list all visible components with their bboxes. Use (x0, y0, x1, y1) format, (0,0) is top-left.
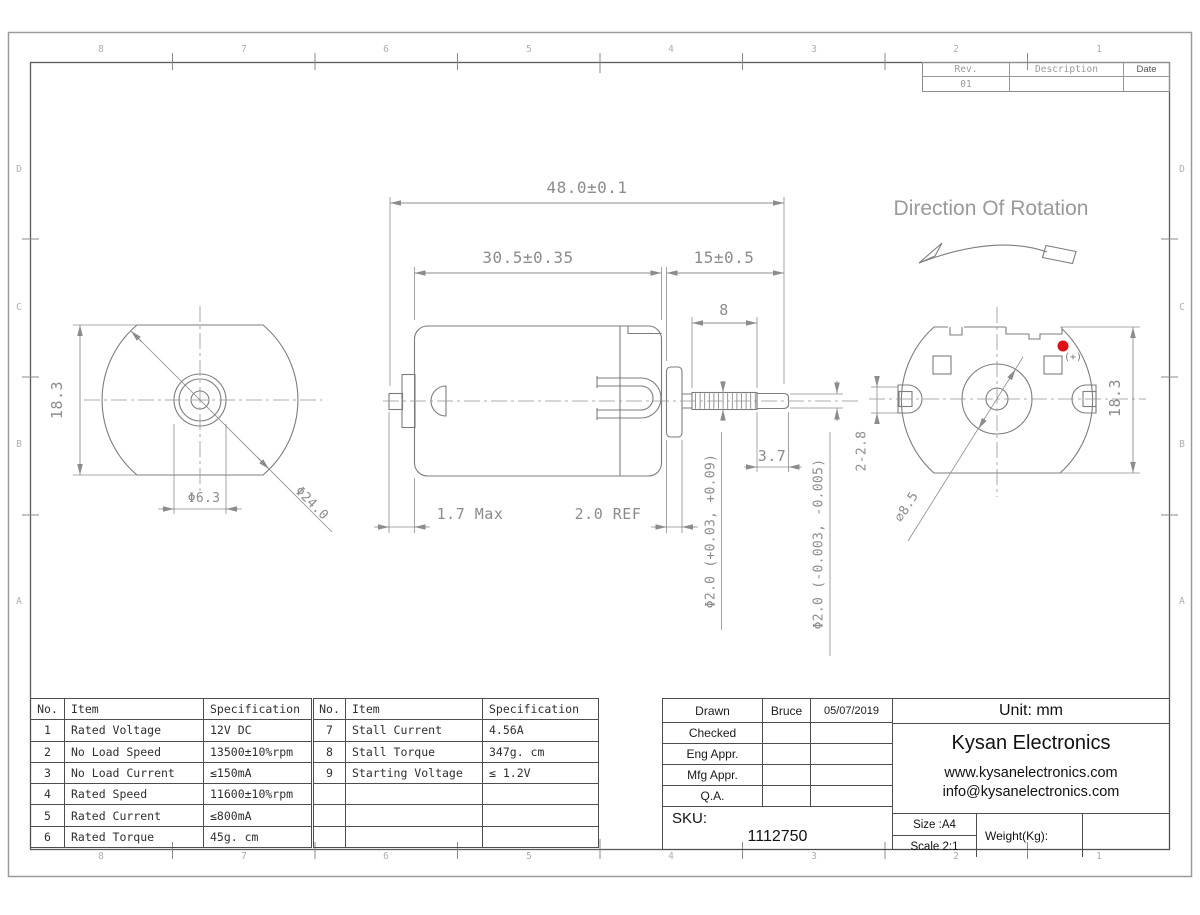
dim-body-dia: Φ24.0 (292, 484, 331, 523)
spec-cell: Rated Current (65, 805, 204, 826)
title-block: Drawn Bruce 05/07/2019 Checked Eng Appr.… (662, 698, 1170, 850)
spec-h-spec1: Specification (204, 699, 313, 720)
company-name: Kysan Electronics (893, 732, 1169, 755)
spec-cell: Rated Torque (65, 826, 204, 847)
zone-row-right: B (1174, 439, 1190, 450)
spec-cell: Starting Voltage (346, 762, 483, 783)
approval-name (763, 786, 811, 807)
dim-knurl-dia: Φ2.0 (+0.03, +0.09) (704, 454, 719, 608)
approval-label: Mfg Appr. (663, 765, 763, 786)
company-website: www.kysanelectronics.com (893, 765, 1169, 781)
spec-h-no1: No. (31, 699, 65, 720)
spec-cell: ≤800mA (204, 805, 313, 826)
spec-h-spec2: Specification (483, 699, 599, 720)
spec-row: 2 No Load Speed 13500±10%rpm 8 Stall Tor… (31, 741, 599, 762)
rev-cell-rev: 01 (923, 77, 1010, 91)
company-cell: Kysan Electronics www.kysanelectronics.c… (893, 732, 1169, 814)
zone-col-bottom: 3 (804, 851, 824, 862)
spec-header-row: No. Item Specification No. Item Specific… (31, 699, 599, 720)
spec-cell: No Load Speed (65, 741, 204, 762)
approval-date: 05/07/2019 (811, 699, 892, 723)
zone-col-bottom: 6 (376, 851, 396, 862)
approval-date (811, 723, 892, 744)
zone-col-top: 6 (376, 44, 396, 55)
spec-cell (346, 826, 483, 847)
spec-cell: Stall Torque (346, 741, 483, 762)
dim-body-height-front: 18.3 (48, 381, 66, 419)
zone-row-left: B (11, 439, 27, 450)
spec-cell (346, 784, 483, 805)
zone-row-left: D (11, 164, 27, 175)
spec-cell: 9 (313, 762, 346, 783)
approval-label: Checked (663, 723, 763, 744)
dim-shaft-extension: 15±0.5 (694, 248, 755, 267)
rev-cell-description (1010, 77, 1124, 91)
revision-table: Rev. Description Date 01 (922, 62, 1170, 92)
zone-row-right: C (1174, 302, 1190, 313)
spec-cell: 3 (31, 762, 65, 783)
side-view: 48.0±0.1 30.5±0.35 15±0.5 8 3.7 1.7 Max (374, 178, 858, 656)
dim-shaft-tip-length: 3.7 (758, 447, 787, 465)
spec-cell: ≤ 1.2V (483, 762, 599, 783)
zone-col-bottom: 5 (519, 851, 539, 862)
zone-col-top: 7 (234, 44, 254, 55)
spec-cell: No Load Current (65, 762, 204, 783)
approval-name (763, 765, 811, 786)
polarity-label: (+) (1064, 352, 1082, 363)
unit-label: Unit: mm (893, 699, 1169, 724)
sheet-scale: Scale 2:1 (893, 836, 976, 857)
spec-h-no2: No. (313, 699, 346, 720)
spec-cell: 347g. cm (483, 741, 599, 762)
direction-of-rotation-label: Direction Of Rotation (894, 197, 1089, 220)
title-block-bottom: Size :A4 Scale 2:1 Weight(Kg): (893, 814, 1169, 857)
rear-bearing-boss (667, 367, 683, 437)
spec-row: 1 Rated Voltage 12V DC 7 Stall Current 4… (31, 720, 599, 741)
spec-cell: 13500±10%rpm (204, 741, 313, 762)
spec-cell: 8 (313, 741, 346, 762)
zone-col-top: 2 (946, 44, 966, 55)
spec-cell: 45g. cm (204, 826, 313, 847)
front-view: 18.3 Φ6.3 Φ24.0 (48, 306, 332, 532)
rear-view: (+) 18.3 2-2.8 ∅8.5 (855, 307, 1147, 541)
spec-cell: 2 (31, 741, 65, 762)
rev-cell-date (1124, 77, 1169, 91)
spec-cell: ≤150mA (204, 762, 313, 783)
spec-cell (313, 784, 346, 805)
spec-cell: 4 (31, 784, 65, 805)
zone-col-top: 5 (519, 44, 539, 55)
sku-value: 1112750 (663, 828, 892, 846)
dim-terminal-size: 2-2.8 (855, 431, 870, 472)
approval-name (763, 744, 811, 765)
spec-cell: 11600±10%rpm (204, 784, 313, 805)
weight-value-cell (1083, 814, 1169, 857)
weight-label: Weight(Kg): (977, 814, 1083, 857)
dim-rear-boss-dia: ∅8.5 (892, 489, 922, 525)
approvals-table: Drawn Bruce 05/07/2019 Checked Eng Appr.… (663, 699, 893, 807)
approval-date (811, 786, 892, 807)
rotation-arrowhead (919, 243, 942, 263)
sheet-size: Size :A4 (893, 814, 976, 836)
spec-row: 3 No Load Current ≤150mA 9 Starting Volt… (31, 762, 599, 783)
title-block-right: Unit: mm Kysan Electronics www.kysanelec… (893, 699, 1169, 849)
approval-label: Drawn (663, 699, 763, 723)
dim-shaft-tip-dia: Φ2.0 (-0.003, -0.005) (812, 459, 827, 630)
spec-cell (346, 805, 483, 826)
zone-row-right: D (1174, 164, 1190, 175)
approval-date (811, 744, 892, 765)
company-email: info@kysanelectronics.com (893, 784, 1169, 800)
spec-table: No. Item Specification No. Item Specific… (30, 698, 599, 848)
spec-cell (483, 805, 599, 826)
spec-h-item2: Item (346, 699, 483, 720)
spec-row: 5 Rated Current ≤800mA (31, 805, 599, 826)
approval-label: Q.A. (663, 786, 763, 807)
dim-front-boss-length: 1.7 Max (437, 505, 504, 523)
zone-col-bottom: 7 (234, 851, 254, 862)
dim-body-length: 30.5±0.35 (482, 248, 573, 267)
spec-cell (313, 826, 346, 847)
spec-cell: 4.56A (483, 720, 599, 741)
zone-row-left: C (11, 302, 27, 313)
dim-knurl-length: 8 (719, 301, 729, 319)
spec-h-item1: Item (65, 699, 204, 720)
spec-cell (483, 784, 599, 805)
spec-cell: 5 (31, 805, 65, 826)
spec-cell: Rated Speed (65, 784, 204, 805)
sku-cell: SKU: 1112750 (663, 807, 893, 849)
spec-cell: 1 (31, 720, 65, 741)
zone-col-bottom: 4 (661, 851, 681, 862)
dim-front-bushing-dia: Φ6.3 (188, 491, 221, 506)
dim-body-height-rear: 18.3 (1106, 379, 1124, 417)
dim-overall-length: 48.0±0.1 (546, 178, 627, 197)
dim-rear-boss-length: 2.0 REF (575, 505, 642, 523)
zone-row-left: A (11, 596, 27, 607)
spec-cell: Stall Current (346, 720, 483, 741)
spec-row: 4 Rated Speed 11600±10%rpm (31, 784, 599, 805)
spec-cell: Rated Voltage (65, 720, 204, 741)
zone-col-top: 4 (661, 44, 681, 55)
spec-cell: 12V DC (204, 720, 313, 741)
polarity-dot (1058, 341, 1069, 352)
zone-col-top: 3 (804, 44, 824, 55)
rev-header-description: Description (1010, 63, 1124, 77)
spec-row: 6 Rated Torque 45g. cm (31, 826, 599, 847)
spec-cell: 6 (31, 826, 65, 847)
sku-label: SKU: (672, 810, 707, 827)
rotation-arrow-tail (1043, 246, 1077, 264)
approval-name: Bruce (763, 699, 811, 723)
zone-col-top: 1 (1089, 44, 1109, 55)
approval-date (811, 765, 892, 786)
vent-hole-left (933, 356, 951, 374)
zone-col-top: 8 (91, 44, 111, 55)
rev-header-date: Date (1124, 63, 1169, 77)
zone-row-right: A (1174, 596, 1190, 607)
direction-of-rotation: Direction Of Rotation (894, 197, 1089, 264)
size-scale-cell: Size :A4 Scale 2:1 (893, 814, 977, 857)
approval-name (763, 723, 811, 744)
vent-hole-right (1044, 356, 1062, 374)
approval-label: Eng Appr. (663, 744, 763, 765)
rev-header-rev: Rev. (923, 63, 1010, 77)
spec-cell (483, 826, 599, 847)
spec-cell (313, 805, 346, 826)
spec-cell: 7 (313, 720, 346, 741)
zone-col-bottom: 8 (91, 851, 111, 862)
